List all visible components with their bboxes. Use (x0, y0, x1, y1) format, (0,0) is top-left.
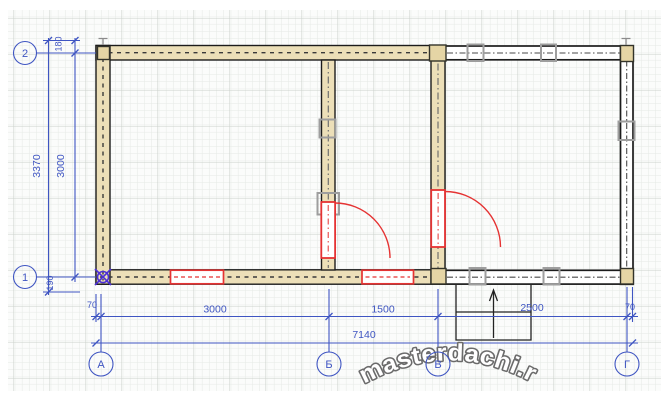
axis-a-label: А (97, 359, 105, 371)
corner-post-v-top (430, 45, 447, 61)
corner-post-v-bottom (431, 269, 446, 285)
dim-v-g: 2500 (520, 302, 544, 314)
origin-marker (95, 269, 111, 285)
dim-left-offset: 70 (87, 300, 97, 310)
dim-inner-height: 3000 (55, 154, 67, 178)
window-2 (362, 270, 414, 284)
floor-plan-canvas: 3000 1500 2500 7140 70 70 3370 3000 180 … (0, 0, 668, 400)
axis-2-label: 2 (22, 48, 28, 60)
axis-v-label: В (434, 359, 441, 371)
corner-post-g-top (621, 46, 634, 62)
corner-post-top-left (98, 47, 110, 60)
dim-a-b: 3000 (203, 304, 227, 316)
window-1 (171, 270, 224, 284)
floor-plan-page: 3000 1500 2500 7140 70 70 3370 3000 180 … (0, 0, 668, 400)
dim-top-offset: 180 (54, 36, 64, 51)
dim-total-width: 7140 (352, 329, 376, 341)
dim-b-v: 1500 (371, 304, 395, 316)
axis-1-label: 1 (22, 272, 28, 284)
dim-total-height: 3370 (31, 154, 43, 178)
axis-b-label: Б (325, 359, 332, 371)
corner-post-g-bottom (621, 269, 634, 285)
dim-bottom-offset: 190 (45, 275, 55, 290)
dim-right-offset: 70 (625, 302, 635, 312)
axis-g-label: Г (624, 359, 630, 371)
